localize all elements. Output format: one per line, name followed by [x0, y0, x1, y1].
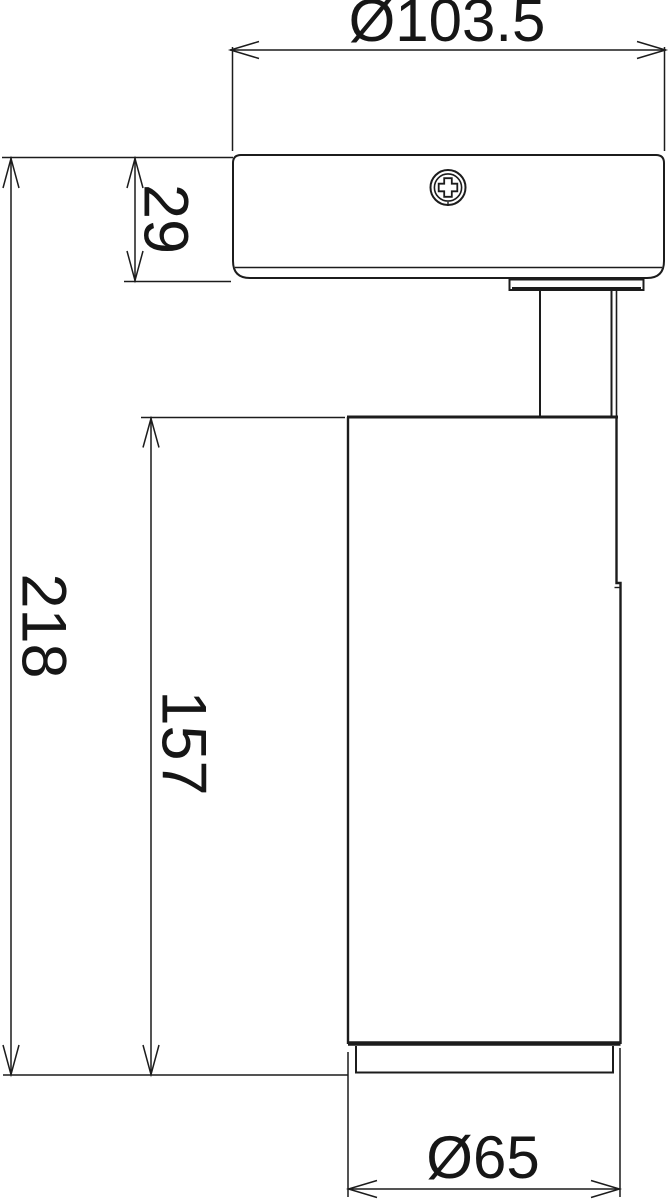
dimension-label-body-diameter: Ø65 — [426, 1128, 539, 1188]
bezel-outline — [356, 1046, 613, 1073]
dimension-label-canopy-height: 29 — [134, 184, 197, 254]
dimension-label-total-height: 218 — [12, 573, 75, 678]
lamp-body-outline — [347, 417, 621, 1044]
phillips-screw-icon — [431, 170, 466, 206]
dimension-label-body-height: 157 — [152, 690, 215, 795]
dimension-label-head-diameter: Ø103.5 — [349, 0, 546, 51]
technical-drawing-canvas: Ø103.5 29 218 157 Ø65 — [0, 0, 669, 1200]
stem — [540, 291, 617, 417]
mounting-bracket — [510, 280, 644, 291]
extension-lines — [2, 47, 665, 1197]
drawing-line-art — [0, 0, 669, 1200]
